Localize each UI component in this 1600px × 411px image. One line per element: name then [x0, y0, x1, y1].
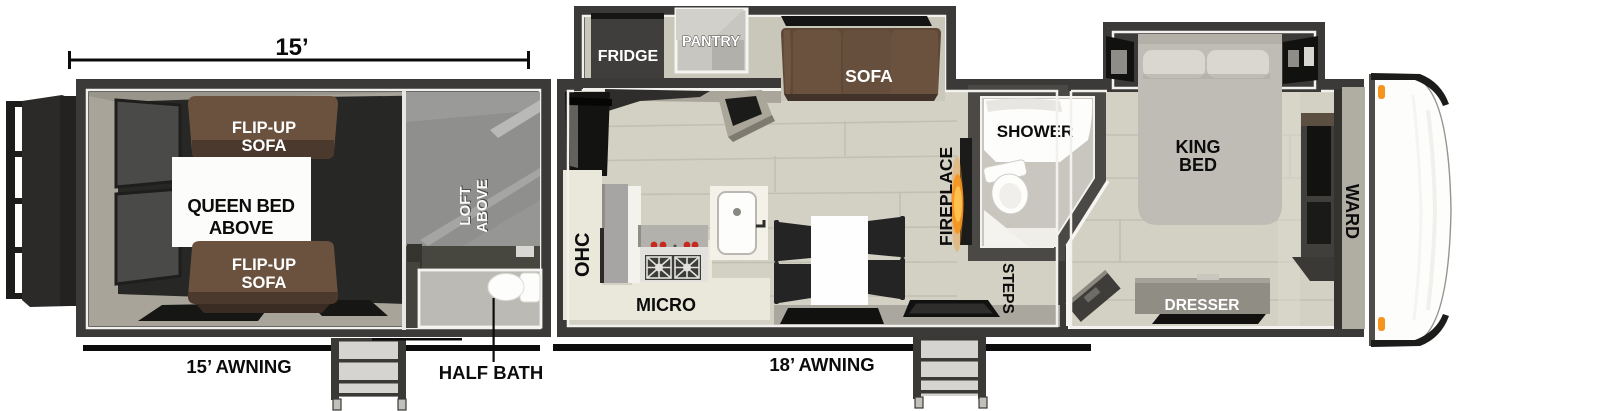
svg-text:FLIP-UP: FLIP-UP	[232, 256, 296, 274]
svg-text:FIREPLACE: FIREPLACE	[936, 147, 956, 246]
svg-text:SHOWER: SHOWER	[997, 122, 1074, 141]
svg-text:ABOVE: ABOVE	[209, 217, 273, 238]
svg-text:OHC: OHC	[572, 233, 594, 277]
svg-text:LOFT: LOFT	[457, 186, 474, 225]
svg-text:SOFA: SOFA	[845, 66, 893, 86]
svg-text:KING: KING	[1176, 137, 1221, 157]
svg-text:WARD: WARD	[1342, 184, 1362, 239]
svg-text:FLIP-UP: FLIP-UP	[232, 119, 296, 137]
svg-text:FRIDGE: FRIDGE	[598, 48, 659, 65]
svg-text:BED: BED	[1179, 155, 1217, 175]
svg-text:15’: 15’	[275, 34, 308, 61]
svg-text:MICRO: MICRO	[636, 295, 696, 315]
svg-text:HALF BATH: HALF BATH	[439, 362, 543, 383]
svg-text:PANTRY: PANTRY	[682, 34, 740, 50]
svg-text:15’ AWNING: 15’ AWNING	[186, 356, 291, 377]
svg-text:DRESSER: DRESSER	[1165, 297, 1240, 314]
svg-text:18’ AWNING: 18’ AWNING	[769, 354, 874, 375]
svg-text:ABOVE: ABOVE	[474, 179, 491, 232]
svg-text:SOFA: SOFA	[242, 274, 287, 292]
svg-text:STEPS: STEPS	[999, 263, 1016, 314]
svg-text:SOFA: SOFA	[242, 137, 287, 155]
svg-text:QUEEN BED: QUEEN BED	[187, 195, 294, 216]
